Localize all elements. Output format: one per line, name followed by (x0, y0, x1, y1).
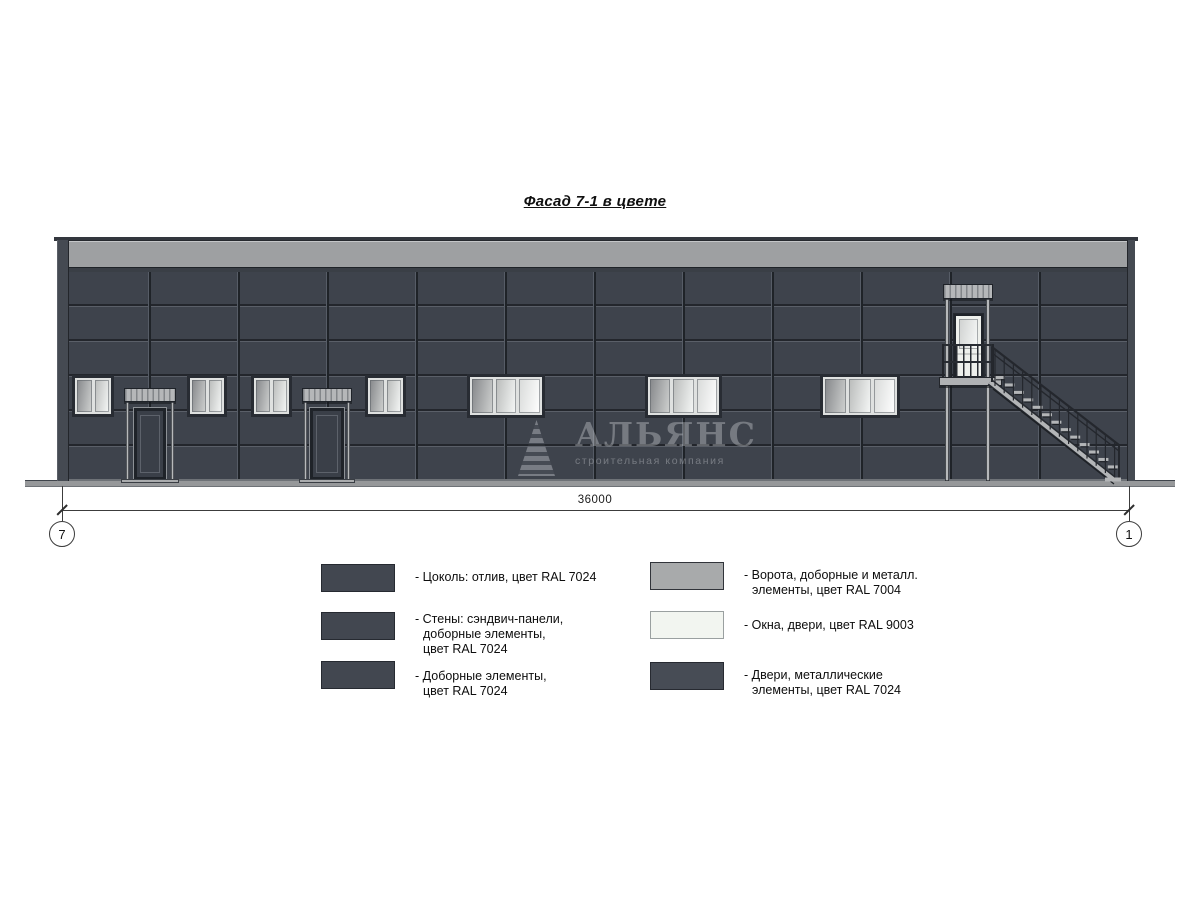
dimension-value: 36000 (520, 494, 670, 506)
window-2pane (187, 375, 227, 417)
metal-door (309, 407, 345, 480)
entrance-door-unit (124, 388, 176, 483)
extension-line-right (1129, 486, 1130, 521)
canopy-post (304, 402, 307, 480)
canopy-post (171, 402, 174, 480)
legend-swatch (650, 611, 724, 639)
door-threshold (121, 479, 179, 483)
window-2pane (251, 375, 292, 417)
legend-swatch (650, 562, 724, 590)
exit-canopy (943, 284, 993, 299)
window-3pane (467, 374, 545, 418)
platform-post (945, 299, 949, 481)
legend-item-walls: - Стены: сэндвич-панели, доборные элемен… (321, 612, 563, 657)
facade-drawing-sheet: Фасад 7-1 в цвете (0, 0, 1200, 900)
canopy-post (347, 402, 350, 480)
door-threshold (299, 479, 355, 483)
watermark-name: АЛЬЯНС (575, 420, 757, 450)
corner-trim-left (57, 240, 69, 481)
window-3pane (645, 374, 722, 418)
company-watermark: АЛЬЯНС строительная компания (518, 420, 757, 476)
exterior-staircase (980, 340, 1140, 492)
axis-marker-7: 7 (49, 521, 75, 547)
legend-swatch (321, 612, 395, 640)
pyramid-logo-icon (518, 420, 555, 476)
window-3pane (820, 374, 900, 418)
door-canopy (302, 388, 352, 402)
legend-swatch (650, 662, 724, 690)
legend-item-plinth: - Цоколь: отлив, цвет RAL 7024 (321, 564, 596, 592)
watermark-subtitle: строительная компания (575, 455, 757, 467)
window-2pane (365, 375, 406, 417)
legend-item-windows: - Окна, двери, цвет RAL 9003 (650, 611, 914, 639)
legend-swatch (321, 661, 395, 689)
door-canopy (124, 388, 176, 402)
canopy-post (126, 402, 129, 480)
window-2pane (72, 375, 114, 417)
axis-marker-1: 1 (1116, 521, 1142, 547)
extension-line-left (62, 486, 63, 521)
legend-item-gates: - Ворота, доборные и металл. элементы, ц… (650, 562, 918, 598)
legend-item-addon-elements: - Доборные элементы, цвет RAL 7024 (321, 661, 547, 699)
metal-door (133, 407, 167, 480)
legend-swatch (321, 564, 395, 592)
drawing-title: Фасад 7-1 в цвете (420, 193, 770, 210)
entrance-door-unit (302, 388, 352, 483)
legend-item-doors: - Двери, металлические элементы, цвет RA… (650, 662, 901, 698)
dimension-line (62, 510, 1129, 511)
parapet-band (68, 240, 1128, 268)
